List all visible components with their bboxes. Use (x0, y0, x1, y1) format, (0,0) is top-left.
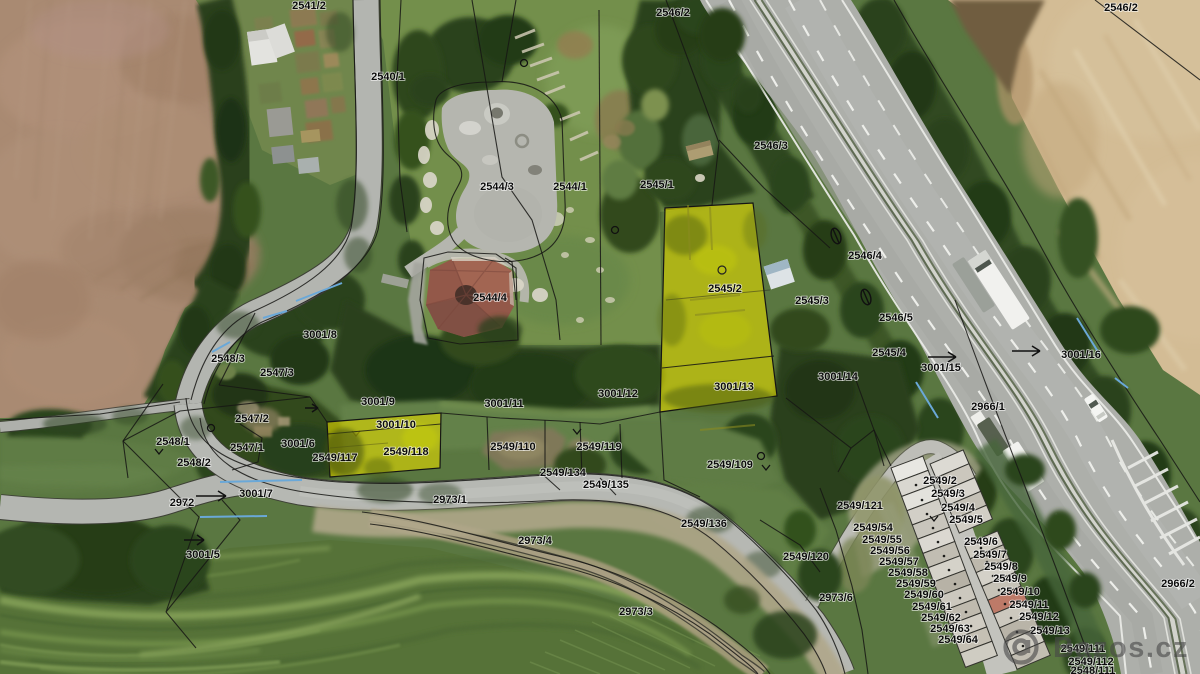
svg-text:3001/5: 3001/5 (186, 549, 220, 561)
svg-text:2548/1: 2548/1 (156, 436, 190, 448)
svg-text:2973/1: 2973/1 (433, 494, 467, 506)
svg-text:2549/10: 2549/10 (1000, 586, 1040, 598)
svg-text:2549/60: 2549/60 (904, 589, 944, 601)
svg-text:2549/8: 2549/8 (984, 561, 1018, 573)
svg-text:3001/14: 3001/14 (818, 371, 859, 383)
svg-text:2546/2: 2546/2 (1104, 2, 1138, 14)
svg-text:2549/109: 2549/109 (707, 459, 753, 471)
svg-text:2546/2: 2546/2 (656, 7, 690, 19)
svg-text:3001/13: 3001/13 (714, 381, 754, 393)
svg-text:2549/110: 2549/110 (490, 441, 535, 453)
svg-text:2549/136: 2549/136 (681, 518, 727, 530)
svg-text:2549/3: 2549/3 (931, 488, 965, 500)
svg-text:3001/15: 3001/15 (921, 362, 961, 374)
svg-text:2547/3: 2547/3 (260, 367, 294, 379)
svg-text:2549/121: 2549/121 (837, 500, 883, 512)
svg-text:2973/4: 2973/4 (518, 535, 553, 547)
svg-text:2546/3: 2546/3 (754, 140, 788, 152)
svg-text:2549/117: 2549/117 (312, 452, 357, 464)
svg-text:2549/6: 2549/6 (964, 536, 998, 548)
svg-text:Bazos.cz: Bazos.cz (1053, 632, 1189, 664)
svg-text:2541/2: 2541/2 (292, 0, 326, 12)
svg-text:2544/4: 2544/4 (473, 292, 508, 304)
svg-text:2549/64: 2549/64 (938, 634, 979, 646)
svg-text:2545/3: 2545/3 (795, 295, 829, 307)
svg-text:2546/5: 2546/5 (879, 312, 913, 324)
svg-text:2548/2: 2548/2 (177, 457, 211, 469)
svg-text:2549/2: 2549/2 (923, 475, 957, 487)
svg-text:2549/134: 2549/134 (540, 467, 587, 479)
svg-text:2545/1: 2545/1 (640, 179, 674, 191)
svg-text:2545/2: 2545/2 (708, 283, 742, 295)
svg-text:2973/3: 2973/3 (619, 606, 653, 618)
svg-text:2966/2: 2966/2 (1161, 578, 1195, 590)
svg-text:2549/5: 2549/5 (949, 514, 983, 526)
svg-text:2966/1: 2966/1 (971, 401, 1005, 413)
svg-text:2548/3: 2548/3 (211, 353, 245, 365)
svg-text:2549/54: 2549/54 (853, 522, 894, 534)
svg-text:3001/6: 3001/6 (281, 438, 315, 450)
svg-text:3001/8: 3001/8 (303, 329, 337, 341)
svg-text:2547/1: 2547/1 (230, 442, 264, 454)
svg-text:2972: 2972 (170, 497, 194, 509)
svg-text:2549/7: 2549/7 (973, 549, 1007, 561)
svg-text:3001/7: 3001/7 (239, 488, 273, 500)
svg-text:2549/119: 2549/119 (576, 441, 621, 453)
svg-text:3001/10: 3001/10 (376, 419, 416, 431)
svg-text:2544/1: 2544/1 (553, 181, 587, 193)
svg-text:2549/4: 2549/4 (941, 502, 976, 514)
svg-text:3001/12: 3001/12 (598, 388, 638, 400)
svg-text:2549/118: 2549/118 (383, 446, 428, 458)
svg-text:2973/6: 2973/6 (819, 592, 853, 604)
svg-text:2549/9: 2549/9 (993, 573, 1027, 585)
svg-text:2540/1: 2540/1 (371, 71, 405, 83)
svg-text:2549/135: 2549/135 (583, 479, 629, 491)
svg-text:2549/11: 2549/11 (1009, 599, 1048, 611)
svg-text:3001/16: 3001/16 (1061, 349, 1101, 361)
svg-text:2547/2: 2547/2 (235, 413, 269, 425)
svg-text:2545/4: 2545/4 (872, 347, 907, 359)
svg-text:2546/4: 2546/4 (848, 250, 883, 262)
svg-text:3001/9: 3001/9 (361, 396, 395, 408)
svg-text:2548/111: 2548/111 (1071, 665, 1116, 674)
svg-text:2549/120: 2549/120 (783, 551, 829, 563)
svg-text:2544/3: 2544/3 (480, 181, 514, 193)
svg-text:2549/12: 2549/12 (1019, 611, 1059, 623)
svg-text:3001/11: 3001/11 (484, 398, 523, 410)
